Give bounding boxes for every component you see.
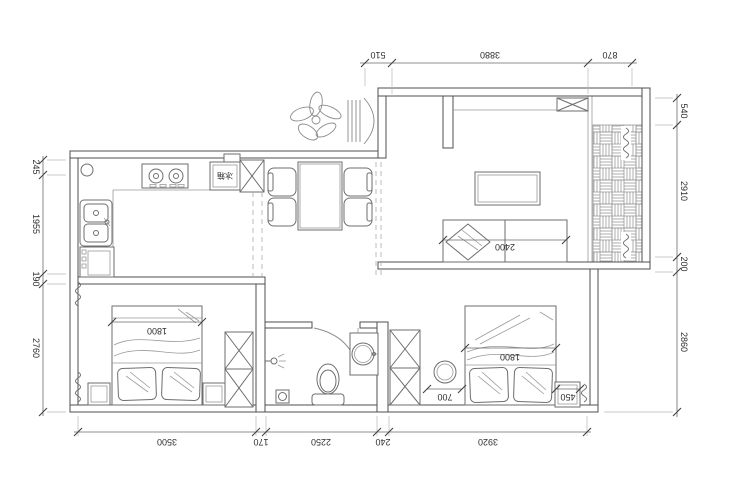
dim-right-1: 2910 — [679, 181, 689, 201]
dim-chain-top: 510 3880 870 — [360, 50, 637, 94]
wall-living-bottom — [378, 262, 650, 269]
dim-left-2: 190 — [31, 271, 41, 286]
stove-icon — [142, 164, 188, 188]
wall-entry-screen — [443, 96, 453, 148]
balcony-floor-hatch — [593, 125, 642, 262]
shower-head-icon — [265, 354, 286, 368]
shoe-cabinet-icon — [557, 98, 588, 111]
plant-icon — [289, 91, 343, 143]
toilet-icon — [312, 364, 344, 405]
wall-bath-left — [256, 284, 265, 412]
dim-left-3: 2760 — [31, 338, 41, 358]
fridge-icon: 冰箱 — [210, 154, 240, 190]
right-bed-width-label: 1800 — [500, 352, 520, 362]
dim-bottom-1: 170 — [253, 437, 268, 447]
wall-entry-step — [378, 88, 386, 158]
stool-dim: 700 — [423, 385, 466, 402]
wall-bottom — [70, 405, 598, 412]
dim-bottom-0: 3500 — [157, 437, 177, 447]
dim-right-3: 2860 — [679, 332, 689, 352]
wall-bath-top — [265, 322, 312, 328]
dim-right-0: 540 — [679, 103, 689, 118]
fridge-label: 冰箱 — [217, 171, 233, 181]
dim-top-1: 3880 — [480, 50, 500, 60]
dim-bottom-2: 2250 — [311, 437, 331, 447]
entry-door-swing-icon — [364, 98, 374, 144]
wall-bedroom-right — [590, 269, 598, 412]
wall-bath-bedroom — [377, 322, 388, 412]
dim-top-0: 510 — [370, 50, 385, 60]
kitchen-cabinet-icon — [240, 160, 264, 192]
hall-wardrobe-icon — [390, 330, 420, 405]
sofa-width-label: 2400 — [495, 242, 515, 252]
floor-plan-drawing: 冰箱 — [0, 0, 740, 500]
wall-right-outer — [642, 88, 650, 269]
left-wardrobe-icon — [225, 332, 253, 407]
dim-chain-left: 245 1955 190 2760 — [31, 156, 66, 416]
kitchen: 冰箱 — [80, 154, 264, 277]
sink-icon — [80, 200, 112, 246]
entry — [289, 91, 374, 144]
wall-mid — [78, 277, 265, 284]
wall-left — [70, 151, 78, 412]
bathroom — [265, 328, 378, 405]
wall-bath-top-stub — [360, 322, 377, 328]
dim-bottom-3: 240 — [375, 437, 390, 447]
right-bedroom: 1800 700 450 — [423, 306, 587, 407]
dim-left-0: 245 — [31, 159, 41, 174]
dining-table-icon — [298, 162, 342, 230]
water-heater-icon — [81, 164, 93, 176]
balcony — [588, 96, 642, 262]
nightstand-width-label: 450 — [560, 392, 575, 402]
left-bedroom: 1800 — [76, 282, 254, 407]
wall-top-right — [378, 88, 650, 96]
washing-machine-icon — [80, 247, 114, 277]
dining-area — [253, 162, 381, 277]
floor-drain-icon — [276, 390, 289, 403]
dim-chain-bottom: 3500 170 2250 240 3920 — [74, 416, 591, 447]
stool-clearance-label: 700 — [437, 392, 452, 402]
left-bed-icon — [112, 306, 202, 405]
basin-icon — [350, 333, 378, 375]
coffee-table-icon — [475, 172, 540, 205]
floor-plan-canvas: 冰箱 — [0, 0, 740, 500]
dim-bottom-4: 3920 — [478, 437, 498, 447]
dim-left-1: 1955 — [31, 214, 41, 234]
sofa-icon — [443, 220, 567, 262]
dim-top-2: 870 — [602, 50, 617, 60]
dim-right-2: 200 — [679, 256, 689, 271]
living-room: 2400 — [439, 98, 588, 262]
left-bed-width-label: 1800 — [147, 326, 167, 336]
